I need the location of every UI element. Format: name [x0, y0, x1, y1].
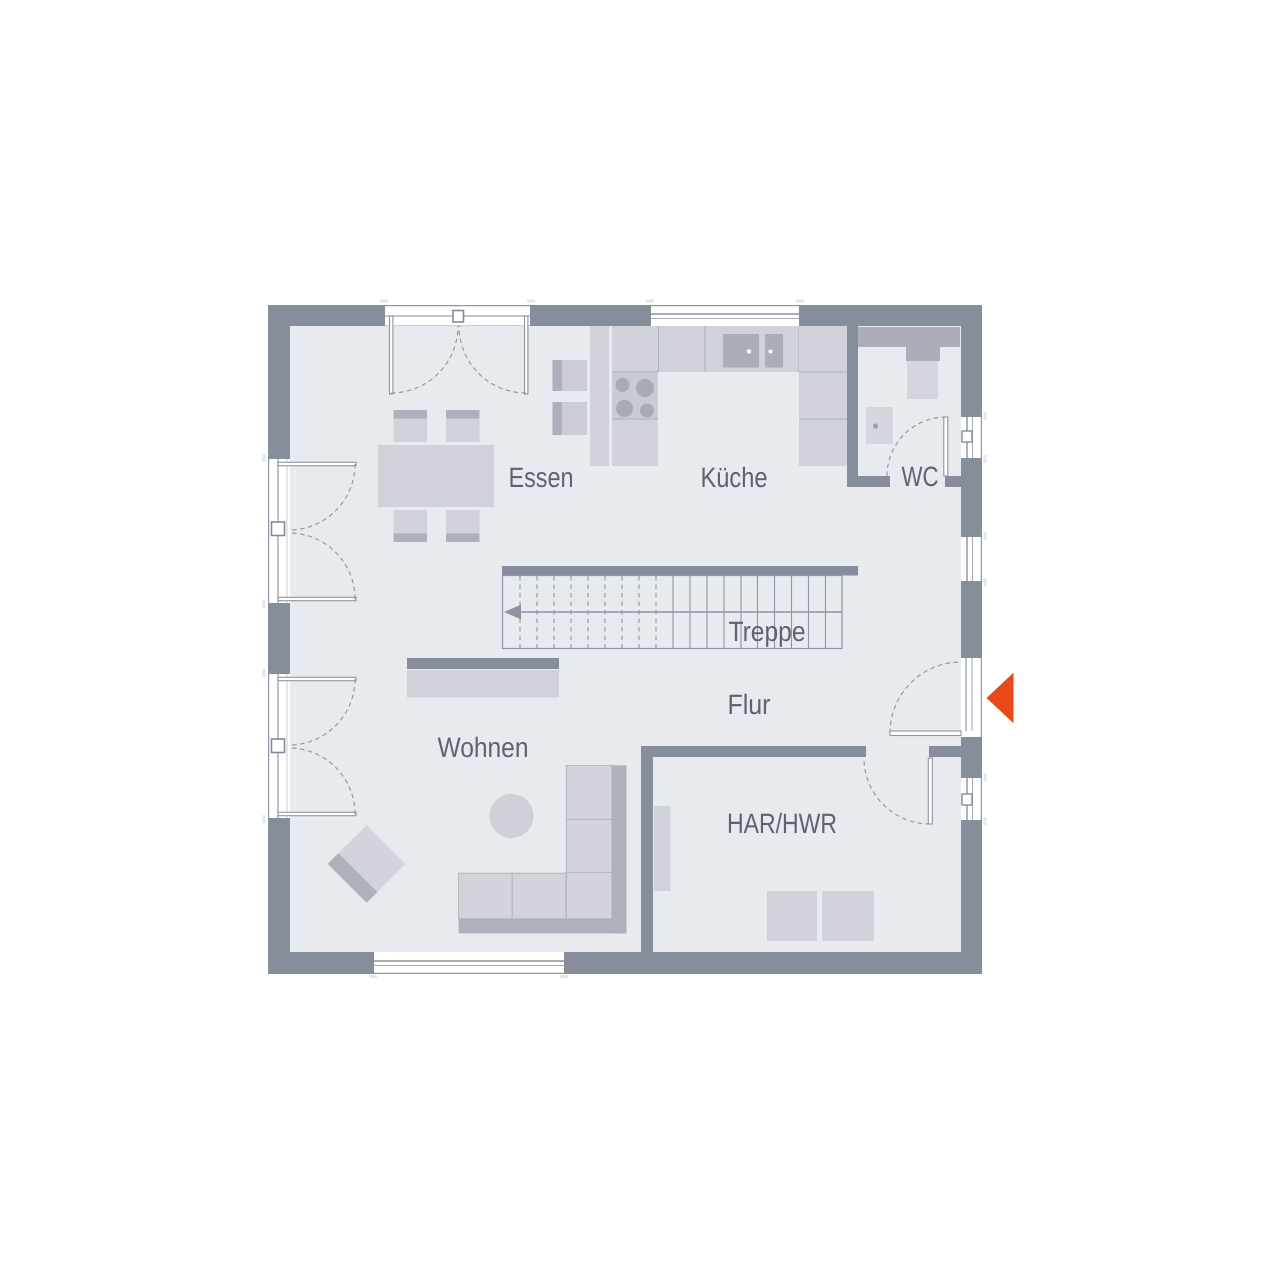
svg-text:Küche: Küche [700, 462, 767, 493]
svg-text:Essen: Essen [508, 462, 573, 493]
svg-text:Flur: Flur [727, 689, 770, 720]
svg-text:Treppe: Treppe [728, 616, 805, 647]
svg-text:HAR/HWR: HAR/HWR [727, 808, 837, 839]
svg-text:WC: WC [901, 461, 938, 492]
svg-text:Wohnen: Wohnen [437, 732, 528, 763]
